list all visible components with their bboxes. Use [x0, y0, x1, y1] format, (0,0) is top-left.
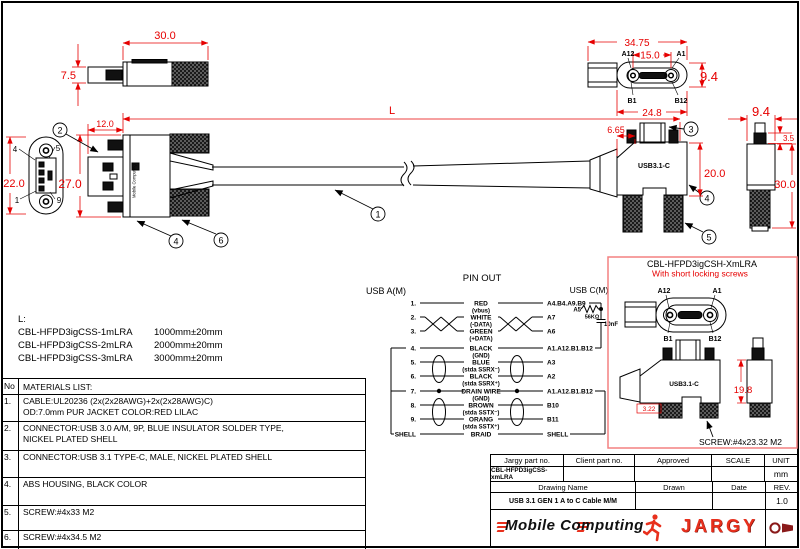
cface-pin-b1: B1: [628, 98, 637, 105]
a-overmold-logo-text: Mobile Computing: [132, 164, 137, 198]
svg-text:(vbus): (vbus): [472, 309, 490, 315]
svg-text:B11: B11: [547, 417, 559, 424]
svg-text:(-DATA): (-DATA): [470, 323, 492, 329]
pinout-left-header: USB A(M): [366, 286, 406, 296]
pinout-a5-label: A5: [573, 308, 581, 314]
materials-row-3: 3. CONNECTOR:USB 3.1 TYPE-C, MALE, NICKE…: [2, 451, 365, 478]
svg-text:2.: 2.: [411, 315, 417, 322]
pinout-resistor-value: 56KΩ: [585, 315, 600, 321]
length-list-title: L:: [18, 313, 223, 326]
approved-header: Approved: [634, 455, 711, 466]
callout-3: 3: [688, 125, 693, 135]
svg-text:(stda SSRX⁺): (stda SSRX⁺): [462, 381, 500, 388]
a-face-pin-4: 4: [13, 145, 18, 154]
svg-text:ORANG: ORANG: [469, 417, 493, 424]
svg-text:A6: A6: [547, 329, 556, 336]
scale-value: [711, 467, 764, 481]
materials-title: MATERIALS LIST:: [19, 379, 365, 394]
svg-text:A1.A12.B1.B12: A1.A12.B1.B12: [547, 346, 593, 353]
svg-text:RED: RED: [474, 301, 488, 308]
dim-plug-length: 30.0: [154, 30, 175, 42]
dim-cface-height: 9.4: [700, 69, 718, 84]
usb-c-face-view: [588, 58, 687, 95]
svg-text:7.: 7.: [411, 389, 417, 396]
svg-text:SHELL: SHELL: [547, 432, 568, 439]
variant-box: CBL-HFPD3igCSH-XmLRA With short locking …: [608, 257, 797, 448]
svg-text:6.: 6.: [411, 374, 417, 381]
variant-pin-b1: B1: [664, 336, 673, 343]
dim-c-top-offset: 6.65: [607, 125, 625, 135]
materials-no-header: No: [2, 379, 19, 394]
materials-row-2: 2. CONNECTOR:USB 3.0 A/M, 9P, BLUE INSUL…: [2, 422, 365, 451]
materials-row-5: 5. SCREW:#4x33 M2: [2, 506, 365, 531]
dim-cside-height: 30.0: [774, 179, 795, 191]
svg-text:A7: A7: [547, 315, 556, 322]
dim-a-shell-length: 12.0: [96, 119, 114, 129]
drawing-name-value: USB 3.1 GEN 1 A to C Cable M/M: [491, 493, 635, 509]
svg-text:A3: A3: [547, 360, 556, 367]
callout-6: 6: [218, 236, 223, 246]
svg-text:SHELL: SHELL: [395, 432, 416, 439]
dim-a-face-height: 22.0: [3, 178, 24, 190]
svg-text:(GND): (GND): [472, 354, 489, 360]
dim-plug-height: 7.5: [61, 70, 76, 82]
title-block: Jargy part no. Client part no. Approved …: [490, 454, 798, 548]
connector-icon-cell: [765, 510, 798, 546]
svg-text:BLUE: BLUE: [472, 360, 490, 367]
svg-text:BLACK: BLACK: [470, 346, 493, 353]
variant-box-border: [608, 257, 797, 448]
pinout-diagram: PIN OUT USB A(M) USB C(M): [366, 273, 618, 439]
drawn-value: [635, 493, 712, 509]
pinout-right-header: USB C(M): [570, 285, 609, 295]
drawn-header: Drawn: [635, 482, 712, 492]
a-face-pin-1: 1: [15, 196, 20, 205]
variant-connector-label: USB3.1-C: [669, 381, 699, 388]
variant-dim-height: 19.8: [734, 385, 753, 396]
materials-header-row: No MATERIALS LIST:: [2, 379, 365, 395]
jargy-logo: JARGY: [681, 516, 758, 537]
variant-pin-a12: A12: [658, 288, 671, 295]
svg-text:(+DATA): (+DATA): [469, 337, 492, 343]
unit-header: UNIT: [764, 455, 797, 466]
drawing-name-row: USB 3.1 GEN 1 A to C Cable M/M 1.0: [491, 493, 798, 510]
length-list: L: CBL-HFPD3igCSS-1mLRA1000mm±20mm CBL-H…: [18, 313, 223, 365]
dim-cside-width: 9.4: [752, 104, 770, 119]
mobile-computing-logo: Mobile Computing: [505, 517, 644, 534]
dim-cface-width: 34.75: [624, 38, 649, 49]
svg-text:BLACK: BLACK: [470, 374, 493, 381]
cface-pin-a12: A12: [622, 51, 635, 58]
callout-1: 1: [375, 210, 380, 220]
svg-text:(GND): (GND): [472, 397, 489, 403]
svg-text:8.: 8.: [411, 403, 417, 410]
dim-cable-length: L: [389, 105, 395, 117]
connector-icon: [769, 521, 795, 535]
variant-pin-a1: A1: [713, 288, 722, 295]
a-face-pin-9: 9: [57, 196, 62, 205]
variant-screw-note: SCREW:#4x23.32 M2: [699, 437, 782, 447]
dim-a-body-height: 27.0: [58, 177, 82, 191]
approved-value: [634, 467, 711, 481]
svg-text:(stda SSRX⁻): (stda SSRX⁻): [462, 368, 500, 374]
rev-header: REV.: [765, 482, 798, 492]
svg-text:A4.B4.A9.B9: A4.B4.A9.B9: [547, 301, 586, 308]
pinout-title: PIN OUT: [463, 273, 502, 284]
title-block-header-row: Jargy part no. Client part no. Approved …: [491, 455, 798, 467]
svg-text:4.: 4.: [411, 346, 417, 353]
pinout-signals: (vbus) (-DATA) (+DATA) (GND) (stda SSRX⁻…: [462, 309, 500, 431]
dim-cside-tab: 3.5: [783, 134, 795, 143]
variant-face-view: [625, 295, 726, 333]
drawing-name-header-row: Drawing Name Drawn Date REV.: [491, 482, 798, 493]
svg-text:WHITE: WHITE: [471, 315, 493, 322]
svg-text:DRAIN WIRE: DRAIN WIRE: [461, 389, 501, 396]
materials-row-1: 1. CABLE:UL20236 (2x(2x28AWG)+2x(2x28AWG…: [2, 395, 365, 422]
drawing-sheet: 30.0 7.5 4 5 1 9 22.0 Mobile Co: [0, 0, 800, 549]
variant-title: CBL-HFPD3igCSH-XmLRA: [647, 259, 757, 269]
dim-cface-pitch: 15.0: [640, 51, 660, 62]
running-man-icon: [643, 513, 665, 543]
svg-text:GREEN: GREEN: [469, 329, 492, 336]
length-row: CBL-HFPD3igCSS-3mLRA3000mm±20mm: [18, 352, 223, 365]
callout-4-left: 4: [173, 237, 178, 247]
svg-text:5.: 5.: [411, 360, 417, 367]
svg-text:BROWN: BROWN: [468, 403, 494, 410]
svg-text:A1.A12.B1.B12: A1.A12.B1.B12: [547, 389, 593, 396]
c-connector-label: USB3.1-C: [638, 163, 670, 170]
dim-cface-slot: 24.8: [642, 108, 662, 119]
a-face-pin-5: 5: [56, 144, 61, 153]
pinout-capacitor-value: 10nF: [604, 322, 618, 328]
svg-text:3.: 3.: [411, 329, 417, 336]
materials-list-table: No MATERIALS LIST: 1. CABLE:UL20236 (2x(…: [2, 378, 366, 549]
dim-c-body-height: 20.0: [704, 168, 725, 180]
scale-header: SCALE: [711, 455, 764, 466]
cface-pin-a1: A1: [677, 51, 686, 58]
unit-value: mm: [764, 467, 797, 481]
part-number-value: CBL-HFPD3igCSS-xmLRA: [491, 467, 563, 481]
callout-5: 5: [706, 233, 711, 243]
variant-dim-small: 3.22: [643, 406, 656, 413]
svg-text:A2: A2: [547, 374, 556, 381]
usb-c-end-view: [747, 123, 775, 231]
svg-text:(stda SSTX⁺): (stda SSTX⁺): [463, 424, 500, 431]
cable: [212, 161, 590, 188]
svg-text:(stda SSTX⁻): (stda SSTX⁻): [463, 411, 500, 417]
usb-a-connector-side-view: [88, 134, 213, 217]
callout-4-right: 4: [704, 194, 709, 204]
variant-screw-leader: [707, 421, 713, 437]
variant-subtitle: With short locking screws: [652, 269, 748, 279]
assembly-dimensions: [76, 113, 680, 217]
brand-area: Mobile Computing JARGY: [491, 510, 765, 546]
materials-row-4: 4. ABS HOUSING, BLACK COLOR: [2, 478, 365, 506]
date-header: Date: [712, 482, 765, 492]
variant-pin-b12: B12: [709, 336, 722, 343]
length-row: CBL-HFPD3igCSS-1mLRA1000mm±20mm: [18, 326, 223, 339]
jargy-part-no-header: Jargy part no.: [491, 455, 563, 466]
svg-text:BRAID: BRAID: [471, 432, 492, 439]
logo-row: Mobile Computing JARGY: [491, 510, 798, 546]
cface-pin-b12: B12: [675, 98, 688, 105]
length-row: CBL-HFPD3igCSS-2mLRA2000mm±20mm: [18, 339, 223, 352]
svg-text:1.: 1.: [411, 301, 417, 308]
client-part-no-header: Client part no.: [563, 455, 634, 466]
svg-text:9.: 9.: [411, 417, 417, 424]
usb-c-connector-side-view: [590, 123, 687, 232]
usb-a-plug-side-view: [88, 60, 208, 87]
client-part-no-value: [563, 467, 634, 481]
date-value: [712, 493, 765, 509]
rev-value: 1.0: [765, 493, 798, 509]
svg-text:B10: B10: [547, 403, 559, 410]
part-number-row: CBL-HFPD3igCSS-xmLRA mm: [491, 467, 798, 482]
materials-row-6: 6. SCREW:#4x34.5 M2: [2, 531, 365, 549]
drawing-name-header: Drawing Name: [491, 482, 635, 492]
callout-2: 2: [57, 126, 62, 136]
